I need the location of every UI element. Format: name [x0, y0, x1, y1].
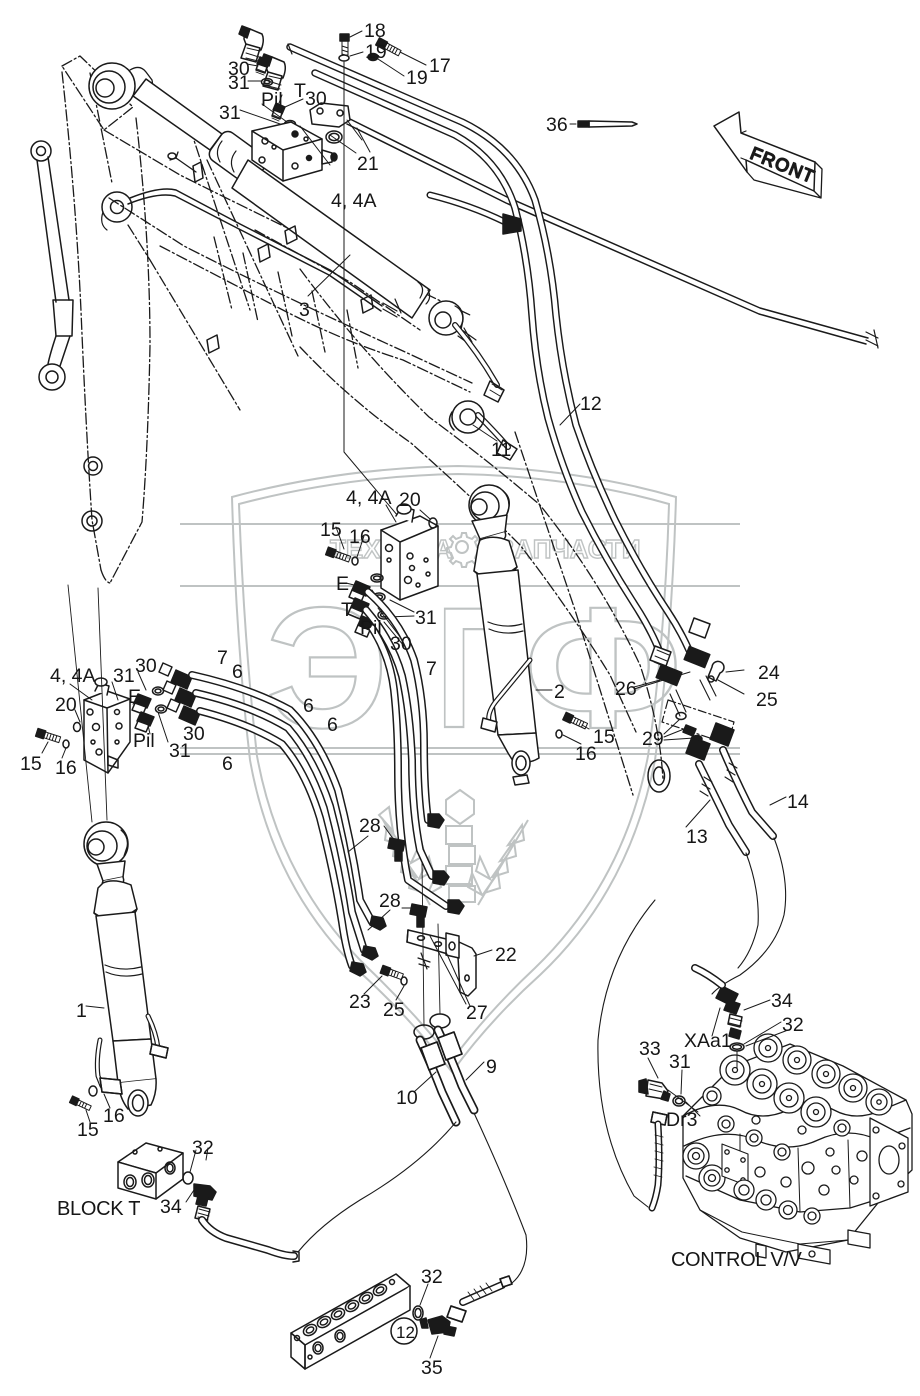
svg-text:34: 34 [771, 990, 793, 1012]
svg-text:15: 15 [20, 753, 42, 775]
svg-text:6: 6 [232, 661, 243, 683]
svg-text:CONTROL V/V: CONTROL V/V [671, 1249, 802, 1271]
svg-text:28: 28 [379, 890, 401, 912]
svg-text:15: 15 [320, 519, 342, 541]
svg-text:7: 7 [426, 658, 437, 680]
svg-text:17: 17 [429, 55, 451, 77]
svg-text:ЗАПЧАСТИ: ЗАПЧАСТИ [498, 534, 641, 564]
svg-text:35: 35 [421, 1357, 443, 1379]
svg-text:27: 27 [466, 1002, 488, 1024]
svg-text:36: 36 [546, 114, 568, 136]
svg-text:25: 25 [756, 689, 778, 711]
svg-text:31: 31 [169, 740, 191, 762]
svg-text:6: 6 [303, 695, 314, 717]
svg-text:6: 6 [222, 753, 233, 775]
svg-text:11: 11 [491, 439, 511, 461]
svg-text:E: E [128, 686, 141, 708]
svg-text:32: 32 [782, 1014, 804, 1036]
svg-text:29: 29 [642, 728, 664, 750]
svg-text:16: 16 [575, 743, 597, 765]
svg-text:31: 31 [415, 607, 437, 629]
svg-text:23: 23 [349, 991, 371, 1013]
svg-text:Dr3: Dr3 [666, 1109, 697, 1131]
svg-text:31: 31 [669, 1051, 691, 1073]
svg-text:3: 3 [299, 299, 310, 321]
svg-text:Pil: Pil [360, 617, 382, 639]
svg-text:9: 9 [486, 1056, 497, 1078]
svg-text:16: 16 [103, 1105, 125, 1127]
svg-text:1: 1 [76, 1000, 87, 1022]
svg-text:31: 31 [113, 665, 135, 687]
svg-text:21: 21 [357, 153, 379, 175]
svg-text:13: 13 [686, 826, 708, 848]
svg-text:12: 12 [396, 1323, 415, 1342]
svg-text:6: 6 [327, 714, 338, 736]
svg-text:30: 30 [305, 88, 327, 110]
svg-text:7: 7 [217, 647, 228, 669]
svg-text:T: T [341, 599, 353, 621]
svg-text:19: 19 [406, 67, 428, 89]
svg-text:22: 22 [495, 944, 517, 966]
svg-text:4, 4A: 4, 4A [346, 487, 392, 509]
svg-text:28: 28 [359, 815, 381, 837]
svg-text:15: 15 [77, 1119, 99, 1141]
svg-text:26: 26 [615, 678, 637, 700]
svg-text:16: 16 [55, 757, 77, 779]
svg-text:Pil: Pil [133, 730, 155, 752]
svg-text:BLOCK T: BLOCK T [57, 1198, 140, 1220]
svg-text:32: 32 [421, 1266, 443, 1288]
svg-text:4, 4A: 4, 4A [50, 665, 96, 687]
svg-text:30: 30 [135, 655, 157, 677]
svg-text:34: 34 [160, 1196, 182, 1218]
svg-text:XAa1: XAa1 [684, 1030, 732, 1052]
svg-text:E: E [336, 573, 349, 595]
svg-text:12: 12 [580, 393, 602, 415]
svg-text:25: 25 [383, 999, 405, 1021]
svg-text:33: 33 [639, 1038, 661, 1060]
svg-text:16: 16 [349, 526, 371, 548]
svg-text:32: 32 [192, 1137, 214, 1159]
svg-text:20: 20 [399, 489, 421, 511]
svg-text:31: 31 [219, 102, 241, 124]
svg-text:18: 18 [364, 20, 386, 42]
svg-text:24: 24 [758, 662, 780, 684]
svg-text:30: 30 [390, 633, 412, 655]
svg-text:2: 2 [554, 681, 565, 703]
svg-text:4, 4A: 4, 4A [331, 190, 377, 212]
svg-text:19: 19 [365, 41, 387, 63]
svg-text:20: 20 [55, 694, 77, 716]
svg-text:10: 10 [396, 1087, 418, 1109]
svg-text:Pil: Pil [261, 89, 283, 111]
svg-text:14: 14 [787, 791, 809, 813]
svg-text:31: 31 [228, 72, 250, 94]
